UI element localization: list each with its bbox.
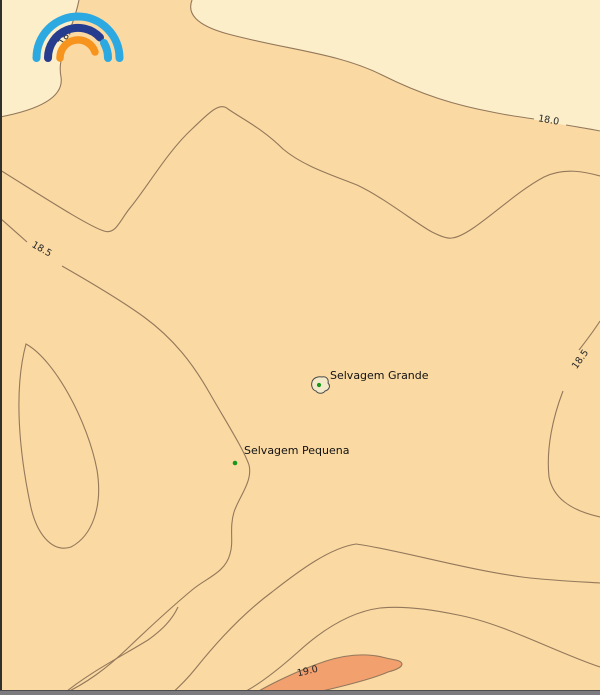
rainbow-arcs-logo-icon — [30, 8, 130, 74]
contour-line-18-5-long — [0, 107, 600, 239]
bottom-bar — [0, 690, 600, 695]
island-dot-selvagem-grande — [317, 383, 321, 387]
contour-line-bottom-left — [62, 607, 178, 695]
contour-line-18-5-labeled — [0, 218, 250, 695]
place-label-selvagem-pequena: Selvagem Pequena — [244, 444, 349, 457]
logo-arc-orange — [60, 40, 95, 58]
place-label-selvagem-grande: Selvagem Grande — [330, 369, 429, 382]
contour-map-svg — [0, 0, 600, 695]
warm-region-bottom — [252, 655, 402, 695]
map-canvas: 18.0 18.0 18.5 18.5 19.0 Selvagem Grande… — [0, 0, 600, 695]
window-left-edge — [0, 0, 2, 695]
island-dot-selvagem-pequena — [233, 461, 238, 466]
logo-arc-cyan-inner — [104, 43, 108, 58]
contour-line-18-5-right — [548, 321, 600, 517]
contour-loop-left — [19, 344, 99, 548]
